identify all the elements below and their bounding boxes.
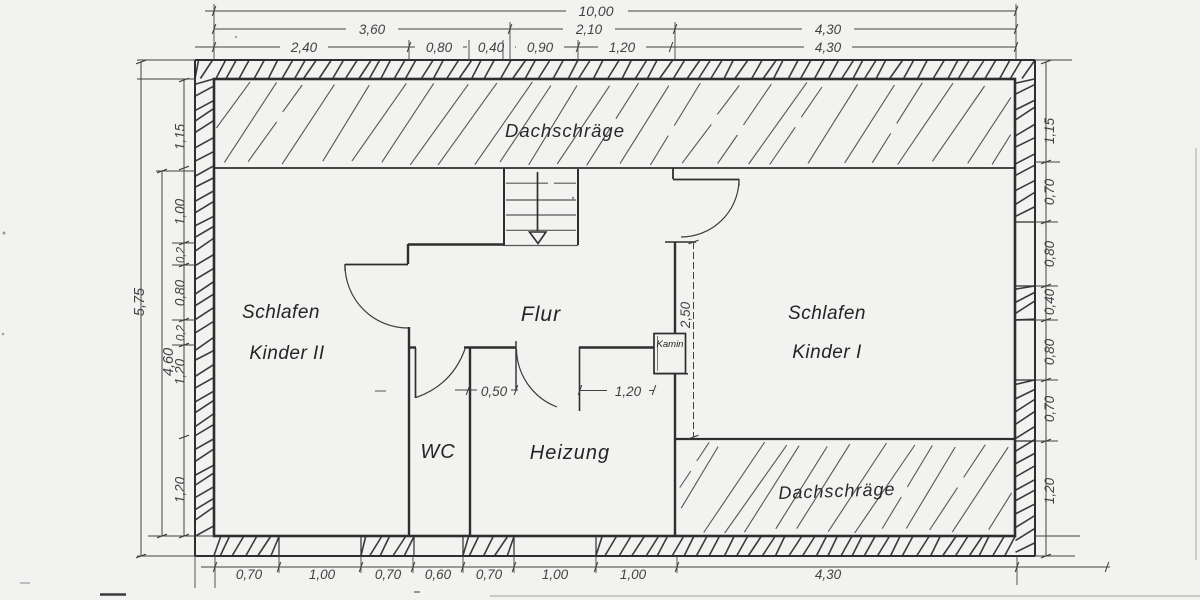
svg-text:3,60: 3,60 <box>359 22 386 37</box>
svg-text:2,50: 2,50 <box>678 301 693 329</box>
svg-text:0,50: 0,50 <box>481 384 508 399</box>
svg-text:4,30: 4,30 <box>815 40 842 55</box>
svg-text:1,20: 1,20 <box>173 476 188 503</box>
svg-text:1,00: 1,00 <box>620 567 647 582</box>
svg-text:WC: WC <box>420 441 455 463</box>
svg-text:0,70: 0,70 <box>1042 178 1057 205</box>
svg-text:0,70: 0,70 <box>1042 395 1057 422</box>
svg-text:1,20: 1,20 <box>609 40 636 55</box>
svg-text:1,00: 1,00 <box>542 567 569 582</box>
svg-text:Schlafen: Schlafen <box>242 302 320 323</box>
svg-text:0,60: 0,60 <box>425 567 452 582</box>
svg-text:2,40: 2,40 <box>290 40 318 55</box>
svg-text:1,00: 1,00 <box>309 567 336 582</box>
svg-text:Schlafen: Schlafen <box>788 303 866 324</box>
svg-text:Dachschräge: Dachschräge <box>505 120 625 141</box>
svg-text:1,00: 1,00 <box>173 198 188 225</box>
svg-text:0,70: 0,70 <box>375 567 402 582</box>
svg-text:Kinder II: Kinder II <box>249 343 324 364</box>
svg-text:1,15: 1,15 <box>173 123 188 150</box>
svg-text:4,30: 4,30 <box>815 567 842 582</box>
svg-text:0,40: 0,40 <box>478 40 505 55</box>
svg-text:0,80: 0,80 <box>426 40 453 55</box>
svg-text:0,80: 0,80 <box>1042 338 1057 365</box>
svg-text:0,2: 0,2 <box>176 324 188 341</box>
svg-text:0,40: 0,40 <box>1042 288 1057 315</box>
svg-text:4,30: 4,30 <box>815 22 842 37</box>
svg-text:Dachschräge: Dachschräge <box>778 479 896 503</box>
svg-text:0,80: 0,80 <box>1042 240 1057 267</box>
svg-text:1,20: 1,20 <box>173 358 188 385</box>
svg-text:1,15: 1,15 <box>1042 117 1057 144</box>
svg-text:5,75: 5,75 <box>132 287 148 316</box>
svg-text:Flur: Flur <box>521 303 561 326</box>
svg-text:0,80: 0,80 <box>173 279 188 306</box>
svg-text:Heizung: Heizung <box>530 442 610 464</box>
svg-text:Kamin: Kamin <box>657 339 684 350</box>
svg-text:Kinder I: Kinder I <box>792 342 862 363</box>
svg-text:0,70: 0,70 <box>236 567 263 582</box>
svg-text:1,20: 1,20 <box>615 384 642 399</box>
svg-text:0,90: 0,90 <box>527 40 554 55</box>
svg-text:2,10: 2,10 <box>575 22 603 37</box>
svg-text:10,00: 10,00 <box>578 3 613 19</box>
svg-text:0,70: 0,70 <box>476 567 503 582</box>
svg-text:0,2: 0,2 <box>176 246 188 263</box>
svg-text:1,20: 1,20 <box>1042 477 1057 504</box>
